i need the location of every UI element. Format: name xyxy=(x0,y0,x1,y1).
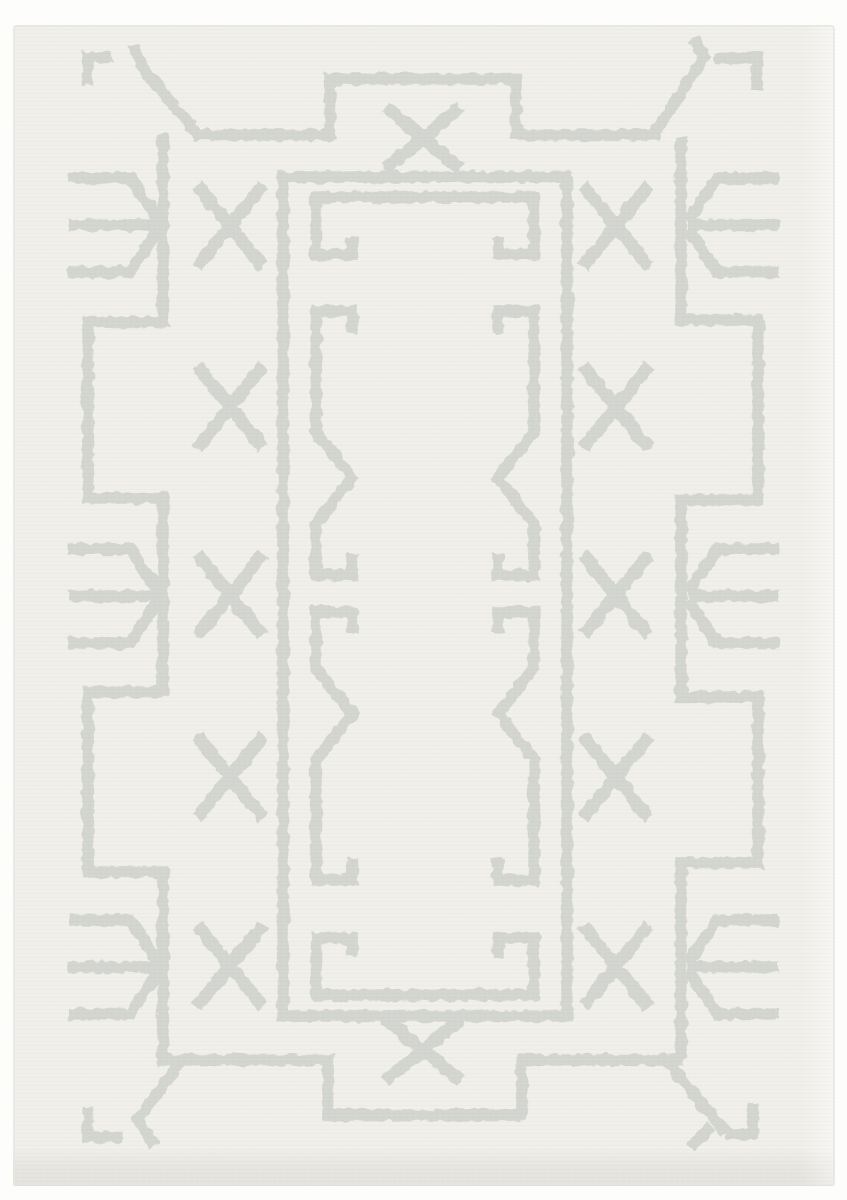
rug-bottom-shadow xyxy=(13,1148,835,1186)
product-photo xyxy=(0,0,847,1200)
rug-pattern-svg xyxy=(0,0,847,1200)
rug-right-edge-highlight xyxy=(800,25,835,1186)
rug-texture-grain xyxy=(13,25,835,1186)
rug xyxy=(13,25,835,1186)
